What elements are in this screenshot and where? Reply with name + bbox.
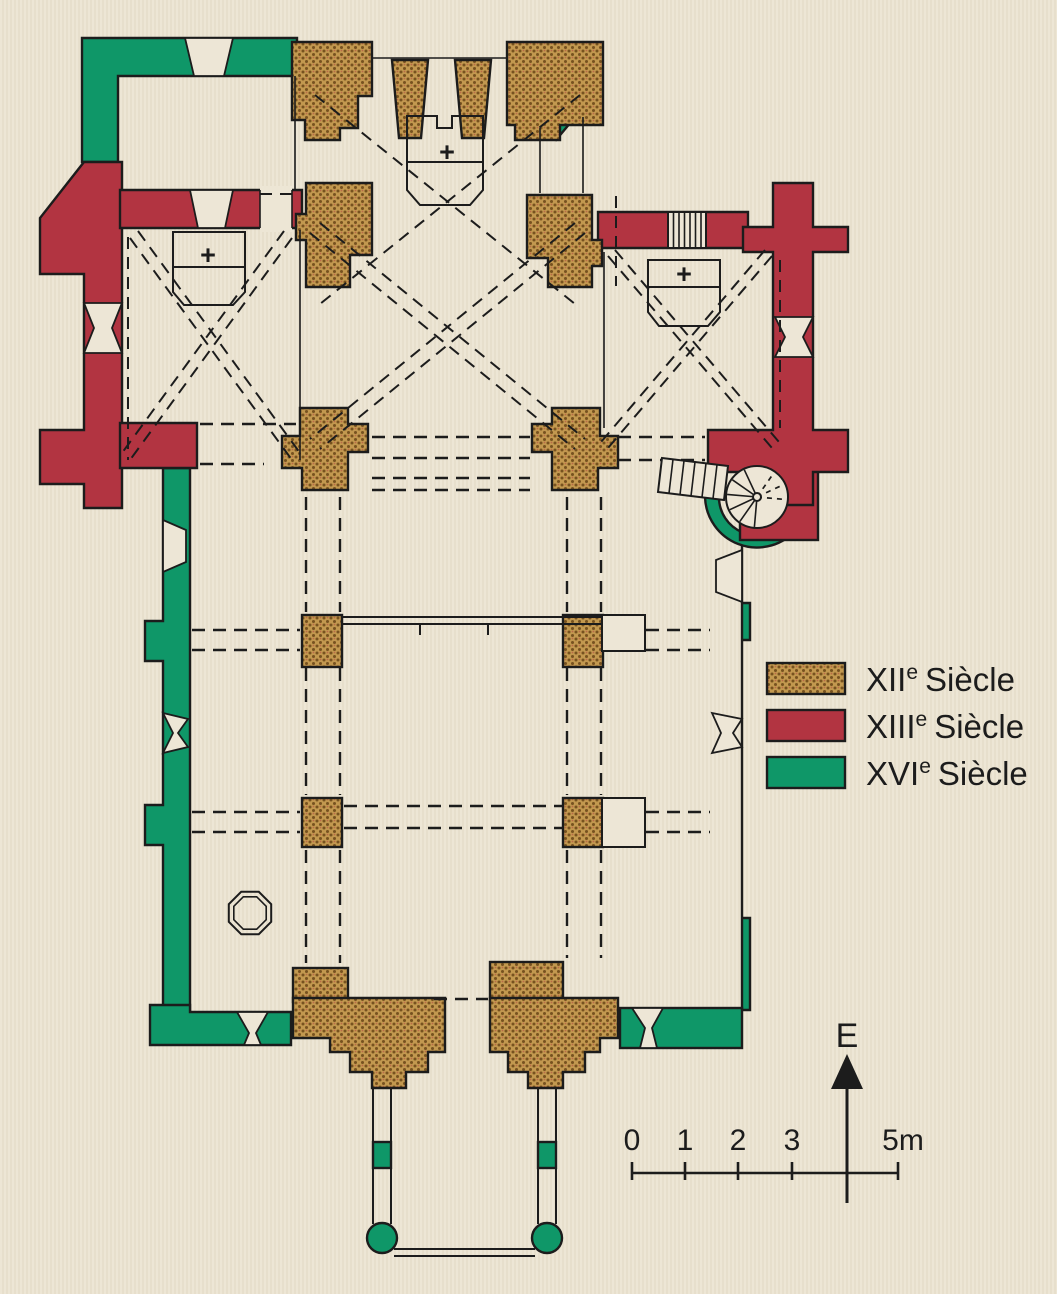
- legend-item-xvi: XVIeSiècle: [767, 755, 1028, 792]
- compass-arrow-icon: [831, 1054, 863, 1089]
- straight-stair-flight: [658, 458, 728, 500]
- legend-label-xvi: XVIeSiècle: [866, 755, 1028, 792]
- baptismal-font: [229, 892, 271, 934]
- north-altar-cross: +: [200, 240, 216, 270]
- scale-tick-2: 2: [730, 1124, 747, 1157]
- legend-swatch-xii: [767, 663, 845, 694]
- nave-pier-s1: [563, 615, 603, 667]
- compass: E: [831, 1017, 863, 1203]
- legend-label-xiii: XIIIeSiècle: [866, 708, 1024, 745]
- north-chapel-altar: +: [173, 232, 245, 305]
- church-plan-svg: + + +: [0, 0, 1057, 1294]
- apse-pier-1: [392, 60, 428, 138]
- legend-swatch-xvi: [767, 757, 845, 788]
- legend-item-xii: XIIeSiècle: [767, 661, 1015, 698]
- nave-pier-s2: [563, 798, 603, 847]
- nave-pier-n1: [302, 615, 342, 667]
- floor-plan-figure: + + +: [0, 0, 1057, 1294]
- nave-south-window-bowtie: [712, 713, 742, 753]
- nave-pier-n2: [302, 798, 342, 847]
- porch-column-left: [367, 1223, 397, 1253]
- west-porch: [373, 1088, 556, 1256]
- interior-details: + + +: [122, 76, 788, 1256]
- north-wall-window: [185, 38, 233, 76]
- north-chapel-window-splay: [190, 190, 233, 228]
- legend-swatch-xiii: [767, 710, 845, 741]
- north-chapel-south-wall: [120, 423, 197, 468]
- pier-outline-box-2: [602, 798, 645, 847]
- compass-label: E: [836, 1017, 859, 1055]
- porch-column-right: [532, 1223, 562, 1253]
- west-facade-cluster-south: [490, 998, 618, 1088]
- pier-outline-box-1: [602, 615, 645, 651]
- crossing-pier-sw: [282, 408, 368, 490]
- spiral-staircase: [726, 466, 788, 528]
- legend-item-xiii: XIIIeSiècle: [767, 708, 1024, 745]
- scale-tick-1: 1: [677, 1124, 694, 1157]
- nave-north-window-splay: [163, 520, 186, 572]
- apse-wall-east-cluster: [507, 42, 603, 140]
- nave-south-window-splay: [716, 550, 742, 602]
- south-altar-cross: +: [676, 259, 692, 289]
- high-altar-cross: +: [439, 137, 455, 167]
- west-corner-wall: [150, 1005, 291, 1045]
- porch-pillar-block-left: [373, 1142, 391, 1168]
- scale-tick-0: 0: [624, 1124, 641, 1157]
- legend-label-xii: XIIeSiècle: [866, 661, 1015, 698]
- scale-bar: 0 1 2 3 5m: [624, 1124, 924, 1180]
- north-chapel-door-gap: [260, 186, 292, 232]
- facade-stub-south: [490, 962, 563, 1000]
- porch-pillar-block-right: [538, 1142, 556, 1168]
- west-facade-cluster-north: [293, 998, 445, 1088]
- apse-pier-2: [455, 60, 491, 138]
- scale-end-label: 5m: [882, 1124, 924, 1157]
- apse-wall-west-cluster: [292, 42, 372, 140]
- legend: XIIeSiècle XIIIeSiècle XVIeSiècle: [767, 661, 1028, 792]
- scale-tick-3: 3: [784, 1124, 801, 1157]
